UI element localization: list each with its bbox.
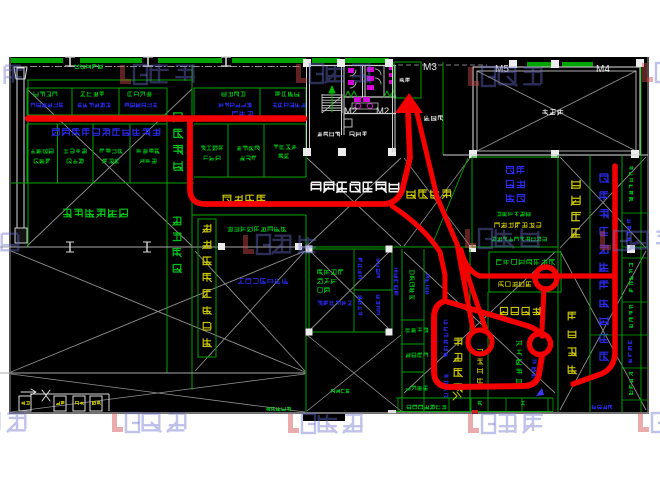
svg-text:M3: M3 [423, 62, 437, 73]
svg-text:M4: M4 [596, 64, 610, 75]
svg-text:M5: M5 [495, 64, 509, 75]
svg-text:M2: M2 [344, 106, 357, 117]
svg-text:M2: M2 [376, 106, 389, 117]
